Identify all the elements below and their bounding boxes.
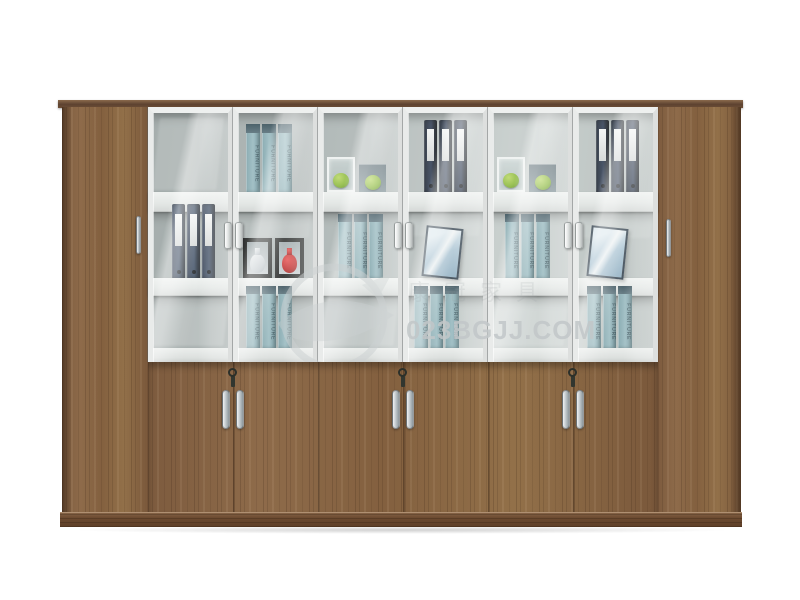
left-wood-door: [62, 107, 148, 512]
cupboard-handle: [392, 390, 400, 429]
right-wood-door: [658, 107, 741, 512]
door-key: [571, 376, 575, 387]
wood-door-handle: [666, 219, 671, 257]
glass-door-handle: [405, 222, 413, 249]
door-key: [401, 376, 405, 387]
glass-door-handle: [235, 222, 243, 249]
cupboard-handle: [576, 390, 584, 429]
glass-door: [148, 107, 233, 362]
cupboard-handle: [406, 390, 414, 429]
cupboard-handle: [562, 390, 570, 429]
door-seam: [318, 362, 320, 512]
right-side-panel: [732, 107, 741, 512]
wood-door-handle: [136, 216, 141, 254]
product-photo: FURNITUREFURNITUREFURNITUREFURNITUREFURN…: [0, 0, 800, 600]
glass-door: [403, 107, 488, 362]
cupboard-handle: [222, 390, 230, 429]
glass-door-handle: [564, 222, 572, 249]
door-seam: [488, 362, 490, 512]
glass-door: [488, 107, 573, 362]
cupboard-handle: [236, 390, 244, 429]
glass-door-handle: [394, 222, 402, 249]
glass-door: [318, 107, 403, 362]
glass-door: [233, 107, 318, 362]
glass-door-handle: [224, 222, 232, 249]
left-side-panel: [62, 107, 71, 512]
glass-door: [573, 107, 658, 362]
door-key: [231, 376, 235, 387]
plinth-base: [60, 512, 742, 527]
cabinet: FURNITUREFURNITUREFURNITUREFURNITUREFURN…: [0, 0, 800, 600]
floor-shadow: [70, 526, 734, 534]
glass-door-handle: [575, 222, 583, 249]
